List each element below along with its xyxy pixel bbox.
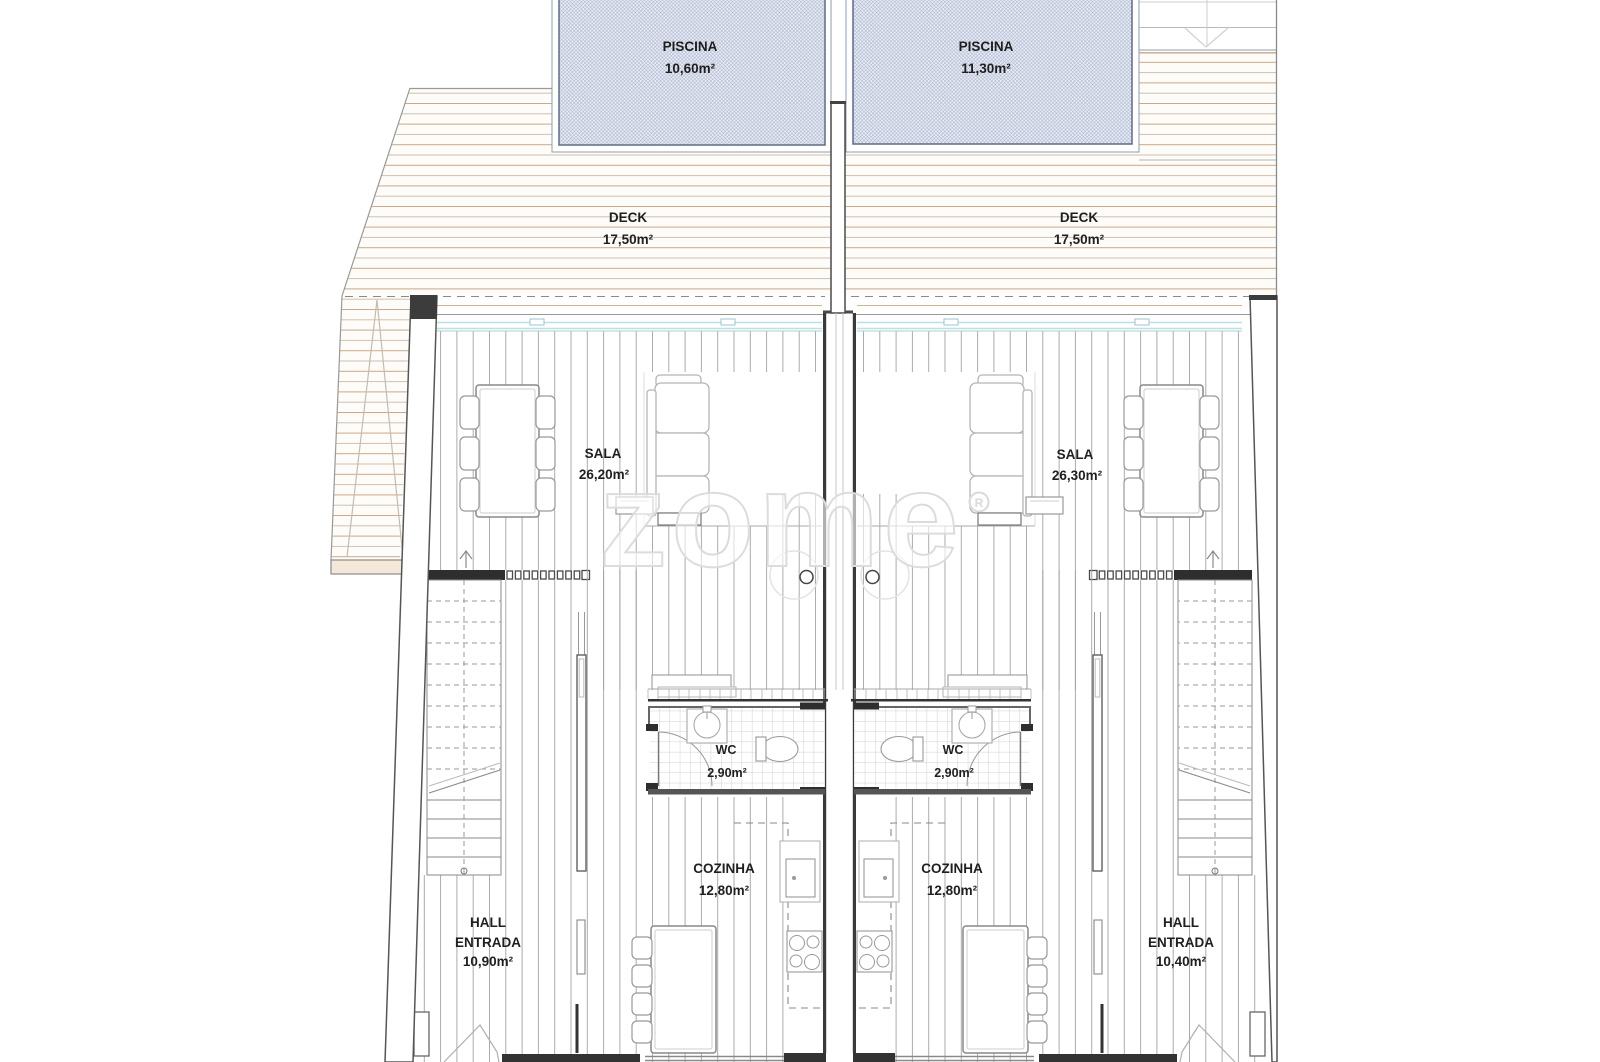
svg-text:17,50m²: 17,50m² <box>1054 232 1105 247</box>
svg-text:WC: WC <box>716 743 737 757</box>
svg-text:DECK: DECK <box>1060 210 1099 225</box>
svg-text:HALL: HALL <box>1163 915 1199 930</box>
svg-text:17,50m²: 17,50m² <box>603 232 654 247</box>
svg-text:DECK: DECK <box>609 210 648 225</box>
svg-text:COZINHA: COZINHA <box>921 861 983 876</box>
svg-text:PISCINA: PISCINA <box>663 39 718 54</box>
svg-text:2,90m²: 2,90m² <box>707 766 747 780</box>
svg-text:COZINHA: COZINHA <box>693 861 755 876</box>
svg-text:26,30m²: 26,30m² <box>1052 468 1103 483</box>
svg-text:ENTRADA: ENTRADA <box>455 935 521 950</box>
svg-text:12,80m²: 12,80m² <box>927 883 978 898</box>
svg-text:10,40m²: 10,40m² <box>1156 954 1207 969</box>
svg-text:PISCINA: PISCINA <box>959 39 1014 54</box>
svg-text:ENTRADA: ENTRADA <box>1148 935 1214 950</box>
svg-text:HALL: HALL <box>470 915 506 930</box>
svg-text:2,90m²: 2,90m² <box>934 766 974 780</box>
svg-text:R: R <box>975 496 984 510</box>
svg-text:11,30m²: 11,30m² <box>961 61 1011 76</box>
svg-text:10,90m²: 10,90m² <box>463 954 514 969</box>
svg-text:10,60m²: 10,60m² <box>665 61 716 76</box>
svg-text:12,80m²: 12,80m² <box>699 883 750 898</box>
svg-text:SALA: SALA <box>585 446 622 461</box>
svg-text:26,20m²: 26,20m² <box>579 467 630 482</box>
svg-text:zome: zome <box>599 443 963 595</box>
svg-text:WC: WC <box>943 743 964 757</box>
svg-text:SALA: SALA <box>1057 447 1094 462</box>
